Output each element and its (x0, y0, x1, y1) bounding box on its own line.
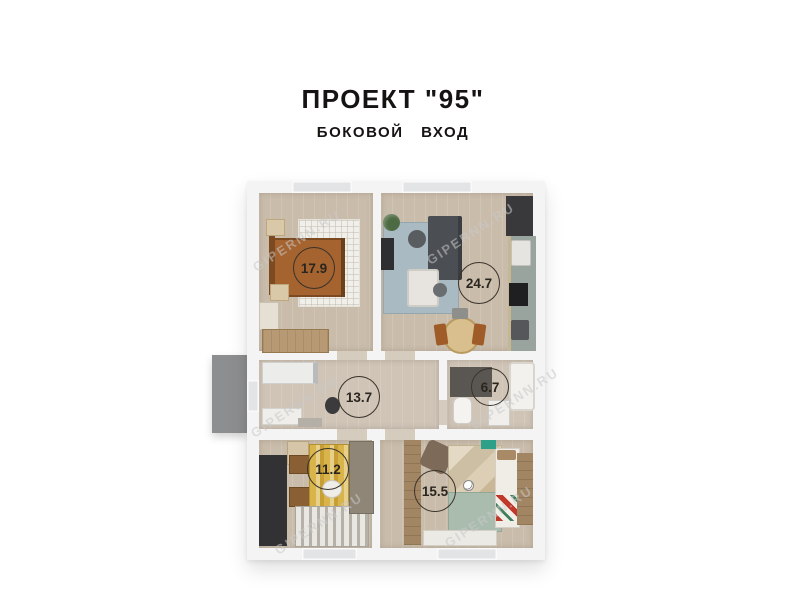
kitchen-tall-cabinet (506, 196, 533, 236)
page-subtitle: БОКОВОЙ ВХОД (143, 124, 643, 141)
pouf (408, 230, 426, 248)
tv-console (381, 238, 394, 270)
bed-footboard (341, 238, 345, 297)
dining-chair (452, 308, 468, 319)
entrance-door (247, 380, 259, 412)
kids-window (437, 548, 497, 560)
header: ПРОЕКТ "95" БОКОВОЙ ВХОД (143, 84, 643, 141)
office-door (337, 429, 367, 440)
area-badge-bedroom: 17.9 (293, 247, 335, 289)
kids-bed-blanket (496, 495, 517, 521)
cooktop (509, 283, 528, 306)
office-wardrobe-right (349, 441, 374, 514)
toilet (453, 397, 472, 424)
entrance-porch (212, 355, 247, 433)
area-badge-kids: 15.5 (414, 470, 456, 512)
page-title: ПРОЕКТ "95" (143, 84, 643, 115)
bedroom-dresser (262, 329, 329, 353)
bedroom-desk (259, 302, 279, 330)
kids-rug-green (448, 492, 502, 532)
area-badge-bathroom: 6.7 (471, 368, 509, 406)
bathroom-door (439, 400, 447, 425)
nightstand (266, 219, 285, 236)
living-window (402, 181, 472, 193)
area-badge-hallway: 13.7 (338, 376, 380, 418)
kids-rug-patch (448, 445, 502, 497)
kids-bed-pillow (497, 450, 516, 460)
kids-bench (423, 530, 497, 546)
kitchen-sink (511, 320, 529, 340)
area-value: 6.7 (481, 380, 500, 395)
area-badge-living: 24.7 (458, 262, 500, 304)
soccer-ball (463, 480, 474, 491)
kids-door (385, 429, 415, 440)
bedroom-door (337, 351, 367, 360)
area-badge-office: 11.2 (307, 448, 349, 490)
area-value: 17.9 (301, 261, 327, 276)
hall-cabinet (262, 362, 318, 384)
bedroom-window (292, 181, 352, 193)
area-value: 13.7 (346, 390, 372, 405)
floor-plan: 17.9 24.7 13.7 6.7 11.2 15.5 (247, 181, 545, 560)
area-value: 11.2 (315, 462, 341, 477)
plant (383, 214, 400, 231)
area-value: 24.7 (466, 276, 492, 291)
hall-bench (262, 408, 302, 425)
kids-wardrobe-right (517, 453, 533, 525)
kids-shelf-teal (481, 440, 496, 449)
hall-mat (298, 418, 322, 427)
nightstand (270, 284, 289, 301)
office-window (302, 548, 357, 560)
side-pouf (433, 283, 447, 297)
bathtub (509, 362, 535, 411)
office-wardrobe (259, 455, 287, 546)
area-value: 15.5 (422, 484, 448, 499)
fridge (511, 240, 531, 266)
living-door (385, 351, 415, 360)
